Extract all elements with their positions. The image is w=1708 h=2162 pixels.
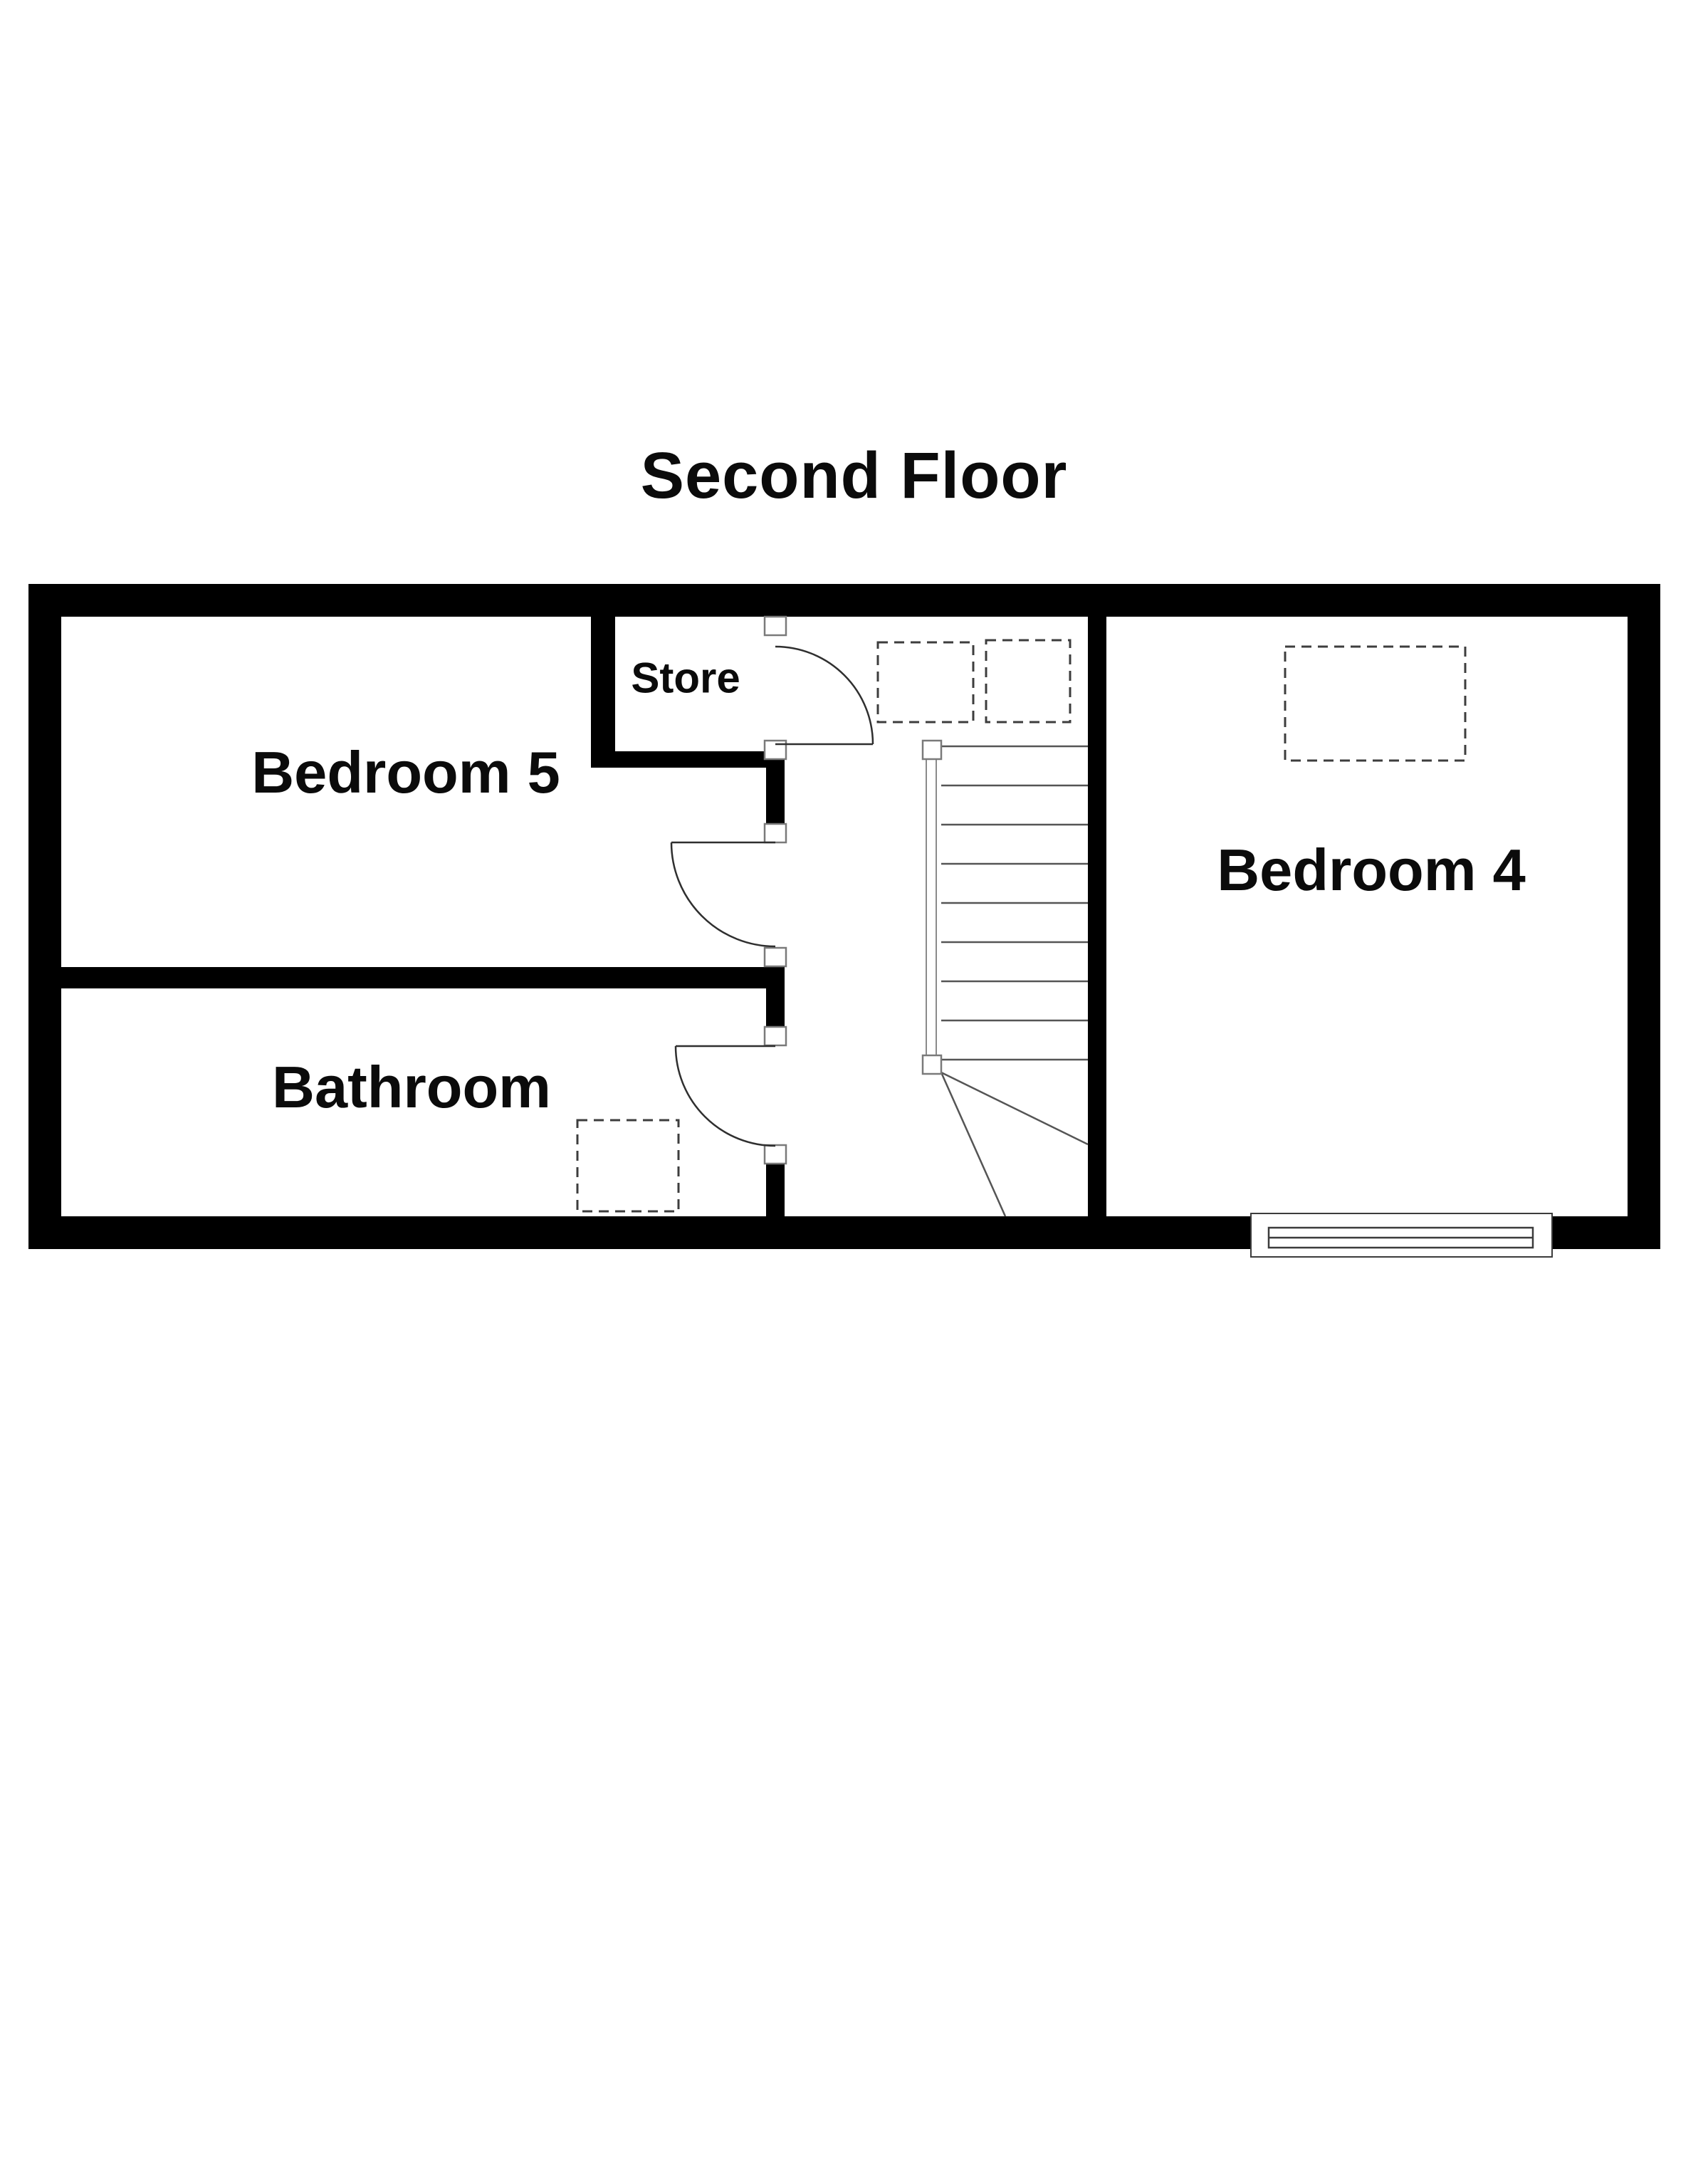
floor-plan-drawing bbox=[28, 584, 1660, 1268]
bathroom-dashed-fixture bbox=[577, 1120, 679, 1211]
hall-wall-segment-1 bbox=[766, 759, 785, 824]
bedroom5-door-top-jamb bbox=[765, 824, 786, 842]
outer-wall-bottom-left-of-window bbox=[28, 1216, 1251, 1249]
doors bbox=[671, 647, 873, 1146]
store-door-arc bbox=[775, 647, 873, 744]
bathroom-door-bottom-jamb bbox=[765, 1145, 786, 1164]
store-door-top-jamb bbox=[765, 617, 786, 635]
hallway-dashed-fixture-1 bbox=[878, 642, 973, 722]
store-bottom-wall bbox=[591, 751, 766, 768]
page-title: Second Floor bbox=[0, 439, 1708, 513]
outer-wall-left bbox=[28, 584, 61, 1249]
room-label-bedroom4: Bedroom 4 bbox=[1217, 836, 1526, 904]
stair-winders bbox=[941, 1072, 1088, 1216]
door-jambs bbox=[765, 617, 786, 1164]
stair-treads bbox=[941, 746, 1088, 1060]
outer-wall-bottom-right-of-window bbox=[1552, 1216, 1660, 1249]
bathroom-door-top-jamb bbox=[765, 1027, 786, 1045]
outer-wall-top bbox=[28, 584, 1660, 617]
room-label-store: Store bbox=[631, 654, 740, 703]
stair-newel-bottom bbox=[923, 1055, 941, 1074]
bedroom4-dashed-fixture bbox=[1285, 647, 1465, 761]
bedroom4-window bbox=[1251, 1213, 1552, 1257]
hallway-dashed-fixture-2 bbox=[986, 640, 1070, 722]
bedroom5-door-bottom-jamb bbox=[765, 948, 786, 966]
staircase bbox=[923, 741, 1088, 1216]
inner-walls bbox=[61, 617, 1106, 1216]
bedroom5-door-arc bbox=[671, 842, 775, 946]
stair-newel-top bbox=[923, 741, 941, 759]
dashed-fixtures bbox=[577, 640, 1465, 1211]
bedroom4-left-wall bbox=[1088, 617, 1106, 1216]
bedroom5-bathroom-wall bbox=[61, 967, 766, 988]
floor-plan bbox=[28, 584, 1660, 1268]
hall-wall-segment-2 bbox=[766, 966, 785, 1027]
bathroom-door-arc bbox=[676, 1046, 775, 1146]
room-label-bathroom: Bathroom bbox=[272, 1053, 551, 1122]
store-left-wall bbox=[591, 617, 615, 768]
room-label-bedroom5: Bedroom 5 bbox=[251, 738, 560, 807]
outer-walls bbox=[28, 584, 1660, 1249]
stair-handrail bbox=[926, 759, 936, 1055]
hall-wall-segment-3 bbox=[766, 1164, 785, 1216]
outer-wall-right bbox=[1628, 584, 1660, 1249]
